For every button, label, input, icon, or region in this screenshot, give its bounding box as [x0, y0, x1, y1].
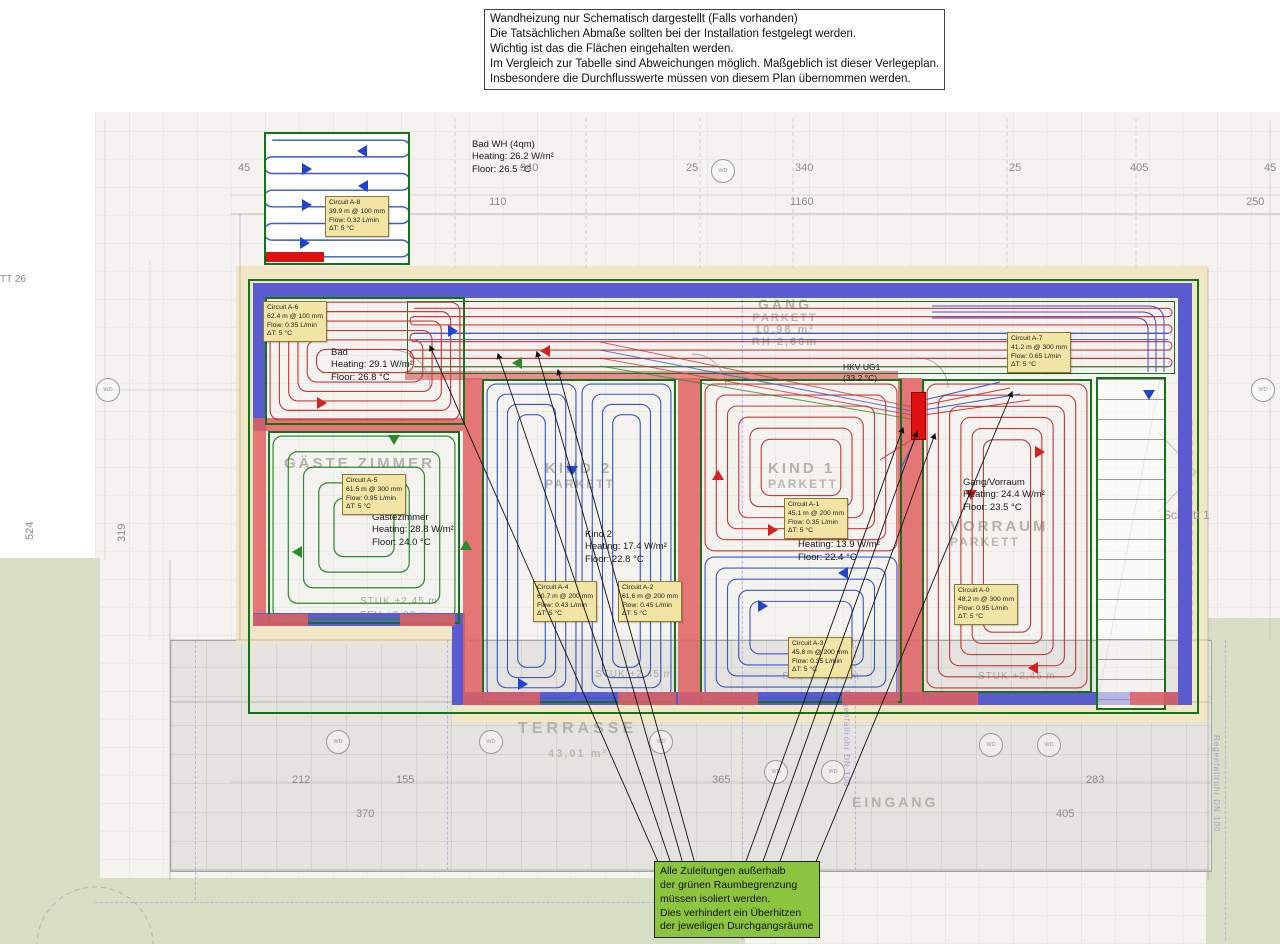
dimension: 1160	[790, 196, 814, 208]
staircase	[1096, 377, 1166, 710]
room-label-kind2: Kind 2 Heating: 17.4 W/m² Floor: 22.8 °C	[585, 529, 667, 566]
wall-red	[482, 692, 540, 705]
flow-arrow	[302, 199, 312, 211]
wall-heating-connection	[266, 252, 324, 262]
circuit-box-a6: Circuit A-662.4 m @ 100 mm Flow: 0.35 L/…	[263, 301, 327, 342]
vorraum-pipe-coil-a0	[924, 381, 1090, 691]
dimension: 110	[489, 196, 507, 208]
wall-red	[678, 378, 700, 705]
insulation-note: Alle Zuleitungen außerhalb der grünen Ra…	[654, 861, 820, 938]
bg-label-regenfallrohr: Regenfallrohr DN 100	[1212, 735, 1221, 832]
circuit-box-a8: Circuit A-839.9 m @ 100 mm Flow: 0.32 L/…	[325, 196, 389, 237]
wd-symbol: WD	[821, 760, 845, 784]
wd-symbol: WD	[649, 730, 673, 754]
bg-label-terrasse-area: 43,01 m²	[548, 748, 608, 760]
dimension: 405	[1130, 162, 1148, 174]
room-label-bad: Bad Heating: 29.1 W/m² Floor: 26.8 °C	[331, 347, 413, 384]
flow-arrow	[460, 540, 472, 550]
drain-line	[195, 640, 196, 900]
dimension: 25	[1009, 162, 1021, 174]
dimension: 155	[396, 774, 414, 786]
room-label-gaestezimmer: Gästezimmer Heating: 28.8 W/m² Floor: 24…	[372, 512, 454, 549]
flow-arrow	[518, 678, 528, 690]
room-label-gang-vorraum: Gang/Vorraum Heating: 24.4 W/m² Floor: 2…	[963, 477, 1045, 514]
flow-arrow	[512, 357, 522, 369]
circuit-box-a4: Circuit A-460.7 m @ 200 mm Flow: 0.43 L/…	[533, 581, 597, 622]
kind2-pipe-coil-a4	[484, 381, 579, 701]
wd-symbol: WD	[479, 730, 503, 754]
wall-red	[920, 692, 978, 705]
drain-line	[1225, 640, 1226, 940]
flow-arrow	[540, 345, 550, 357]
flow-arrow	[358, 180, 368, 192]
flow-arrow	[1035, 446, 1045, 458]
wall-red	[842, 692, 898, 705]
wd-symbol: WD	[979, 733, 1003, 757]
dimension: 524	[24, 522, 36, 540]
room-vorraum	[922, 379, 1092, 693]
flow-arrow	[1143, 390, 1155, 400]
wd-symbol: WD	[326, 730, 350, 754]
circuit-box-a3: Circuit A-345.8 m @ 200 mm Flow: 0.35 L/…	[788, 637, 852, 678]
circuit-box-a5: Circuit A-561.5 m @ 300 mm Flow: 0.95 L/…	[342, 474, 406, 515]
wd-symbol: WD	[711, 159, 735, 183]
wall-red	[253, 431, 266, 613]
wd-symbol: WD	[764, 760, 788, 784]
manifold-hkv	[911, 392, 926, 440]
wall-red	[400, 614, 455, 626]
wall-red	[700, 692, 758, 705]
dimension: TT 26	[0, 274, 26, 285]
circuit-box-a1: Circuit A-145.1 m @ 200 mm Flow: 0.35 L/…	[784, 498, 848, 539]
wall-red	[618, 692, 676, 705]
insulation-band-top	[253, 283, 1178, 298]
drain-line	[95, 902, 745, 903]
wd-symbol: WD	[96, 378, 120, 402]
circuit-box-a0: Circuit A-048.2 m @ 300 mm Flow: 0.95 L/…	[954, 584, 1018, 625]
flow-arrow	[758, 600, 768, 612]
dimension: 250	[1246, 196, 1264, 208]
wd-symbol: WD	[1037, 733, 1061, 757]
dimension: 340	[795, 162, 813, 174]
flow-arrow	[838, 567, 848, 579]
flow-arrow	[300, 237, 310, 249]
flow-arrow	[292, 546, 302, 558]
dimension: 365	[712, 774, 730, 786]
wall-red	[1130, 692, 1178, 705]
flow-arrow	[712, 470, 724, 480]
bg-label-terrasse: TERRASSE	[518, 720, 637, 738]
flow-arrow	[1028, 662, 1038, 674]
dimension: 283	[1086, 774, 1104, 786]
dimension: 405	[1056, 808, 1074, 820]
kind1-pipe-coil-a3	[702, 554, 900, 701]
insulation-band-right	[1178, 283, 1192, 705]
dimension: 45	[238, 162, 250, 174]
wall-heating-room-label: Bad WH (4qm) Heating: 26.2 W/m² Floor: 2…	[472, 139, 554, 176]
flow-arrow	[357, 145, 367, 157]
flow-arrow	[566, 466, 578, 476]
garden-area-bottom	[0, 878, 745, 944]
dimension: 370	[356, 808, 374, 820]
disclaimer-note: Wandheizung nur Schematisch dargestellt …	[484, 9, 945, 90]
dimension: 25	[686, 162, 698, 174]
flow-arrow	[768, 524, 778, 536]
circuit-box-a7: Circuit A-741.2 m @ 300 mm Flow: 0.65 L/…	[1007, 332, 1071, 373]
dimension: 212	[292, 774, 310, 786]
wall-red	[253, 614, 308, 626]
manifold-label: HKV UG1 (33.2 °C)	[843, 362, 880, 384]
flow-arrow	[448, 325, 458, 337]
heating-installation-plan: GANG PARKETT 10,98 m² RH 2,60m GÄSTE ZIM…	[0, 0, 1280, 944]
circuit-box-a2: Circuit A-261.6 m @ 200 mm Flow: 0.45 L/…	[618, 581, 682, 622]
dimension: 45	[1264, 162, 1276, 174]
dimension: 319	[116, 524, 128, 542]
flow-arrow	[388, 435, 400, 445]
flow-arrow	[302, 163, 312, 175]
wd-symbol: WD	[1251, 378, 1275, 402]
flow-arrow	[317, 397, 327, 409]
bg-label-eingang: EINGANG	[852, 794, 938, 810]
